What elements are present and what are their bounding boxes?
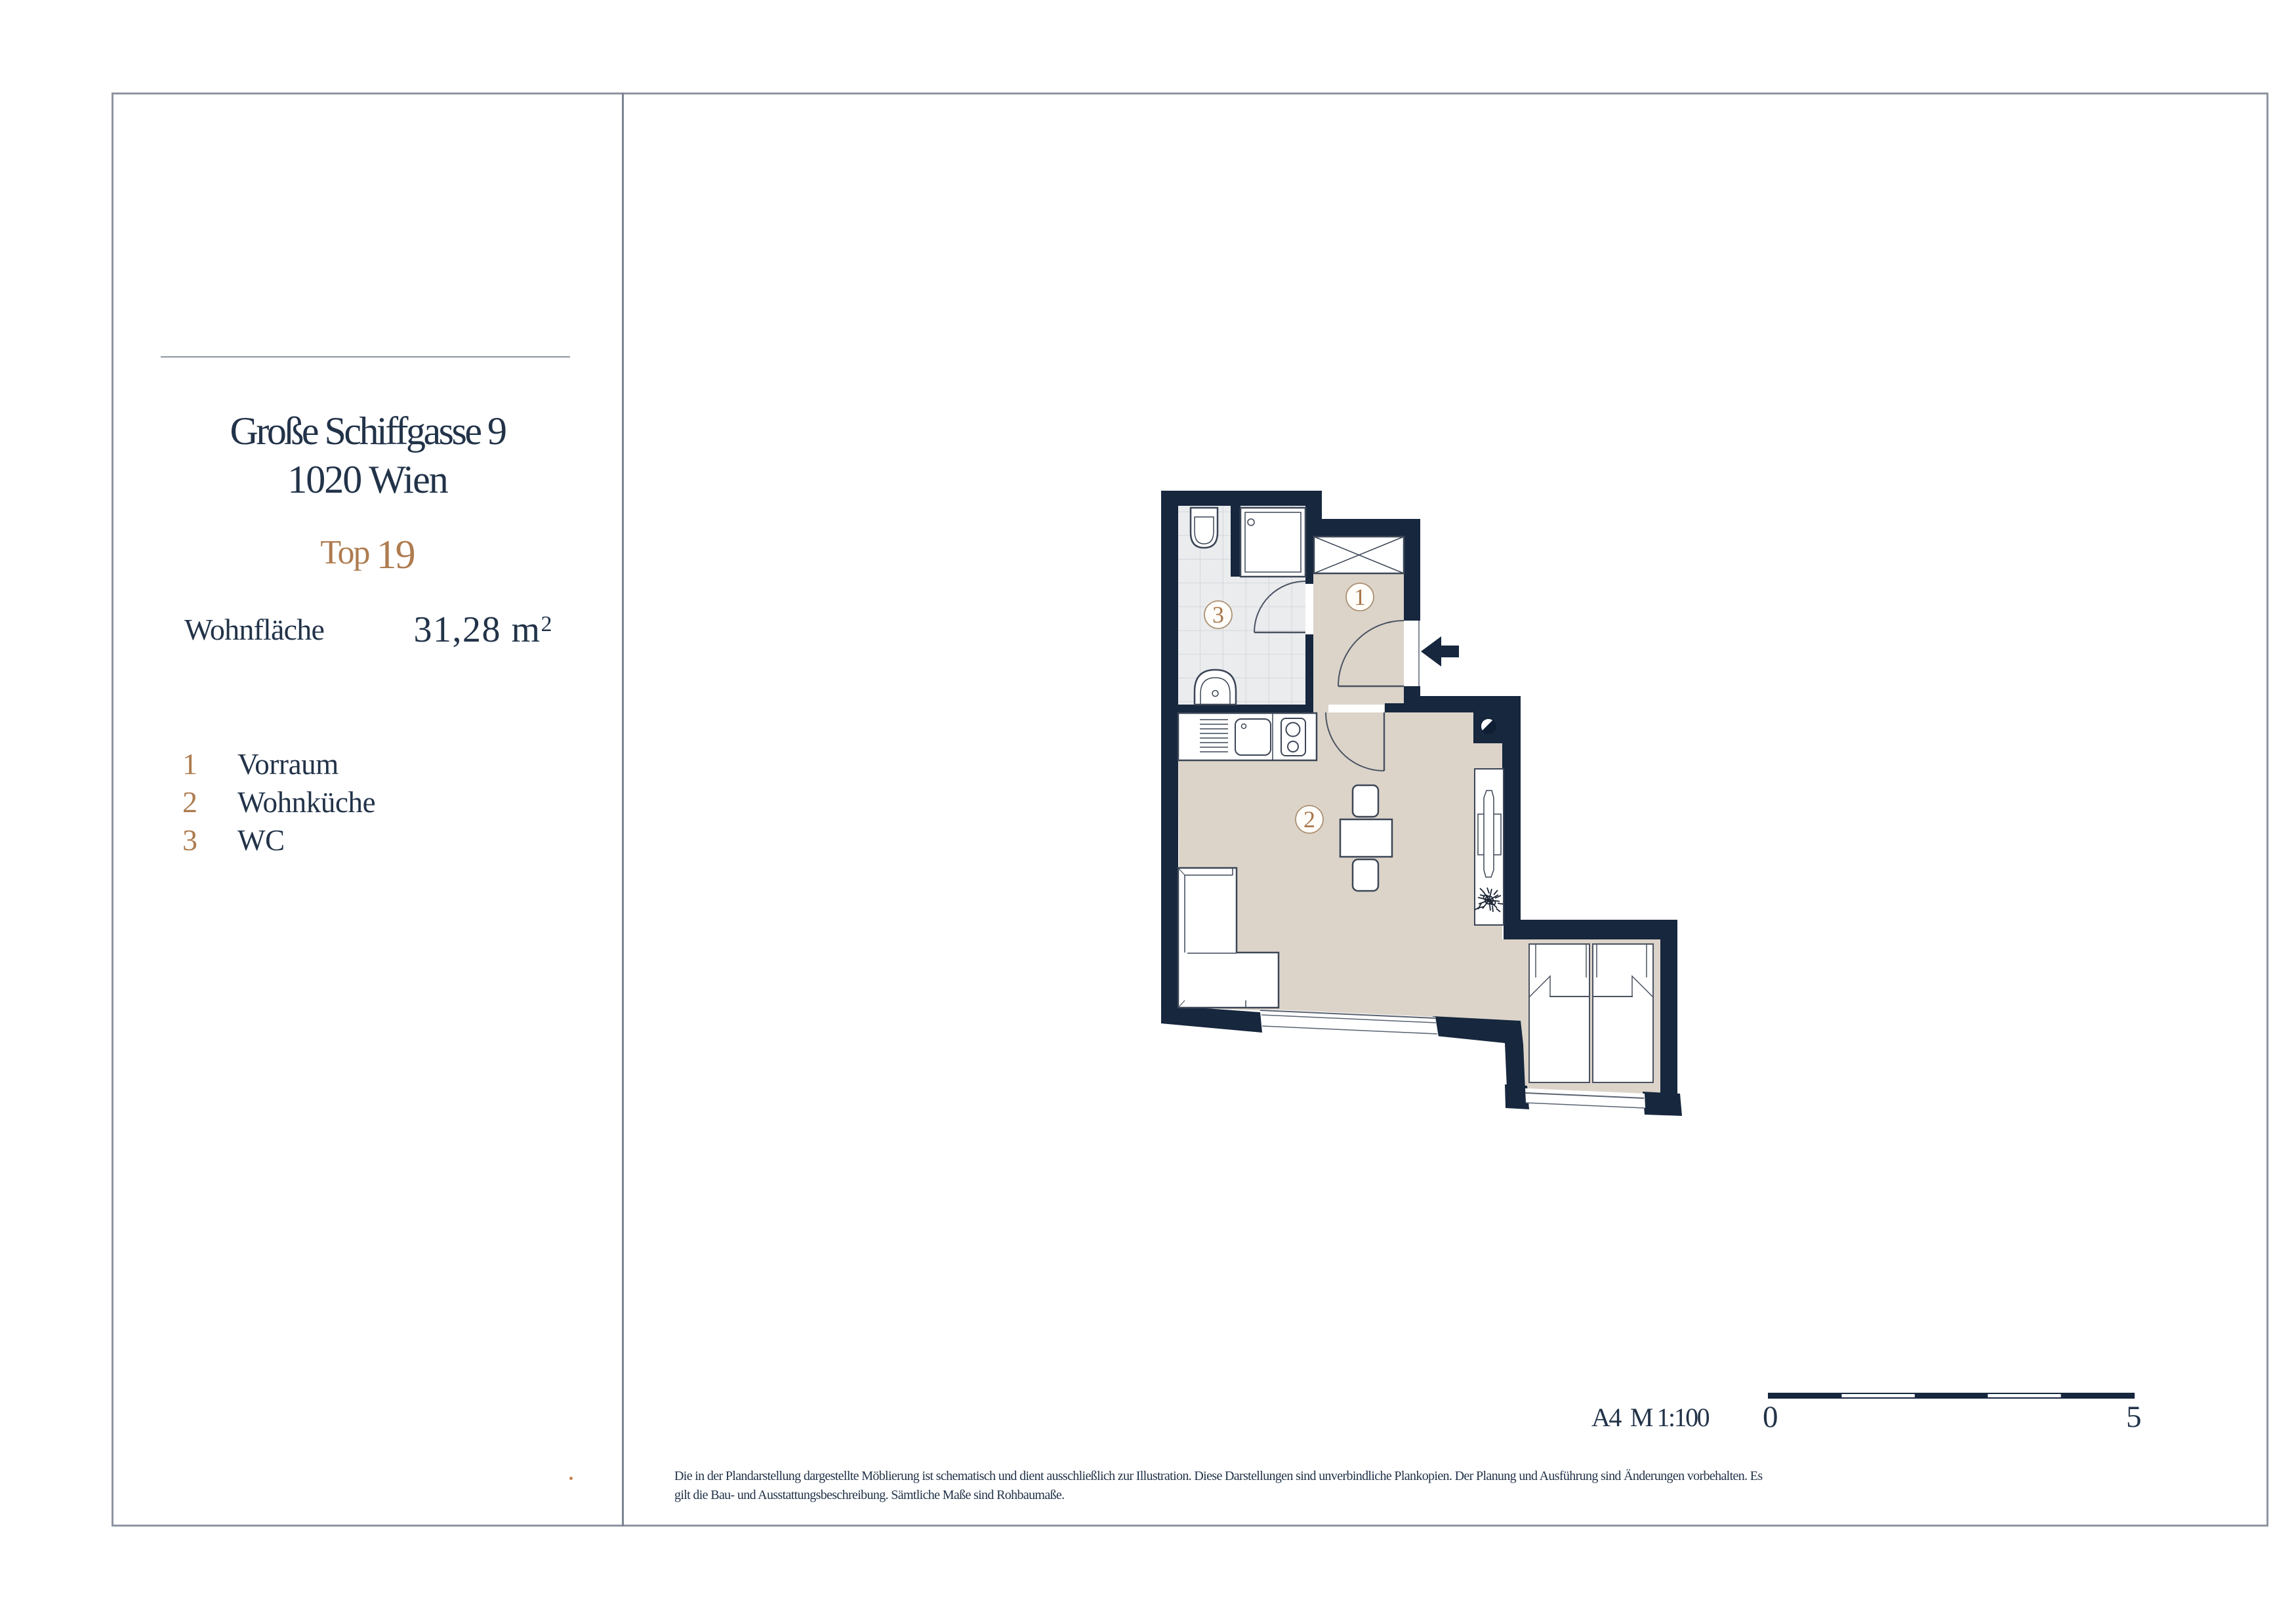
- svg-text:3: 3: [1212, 602, 1224, 628]
- svg-text:2: 2: [1303, 806, 1315, 832]
- svg-text:1: 1: [1354, 584, 1366, 610]
